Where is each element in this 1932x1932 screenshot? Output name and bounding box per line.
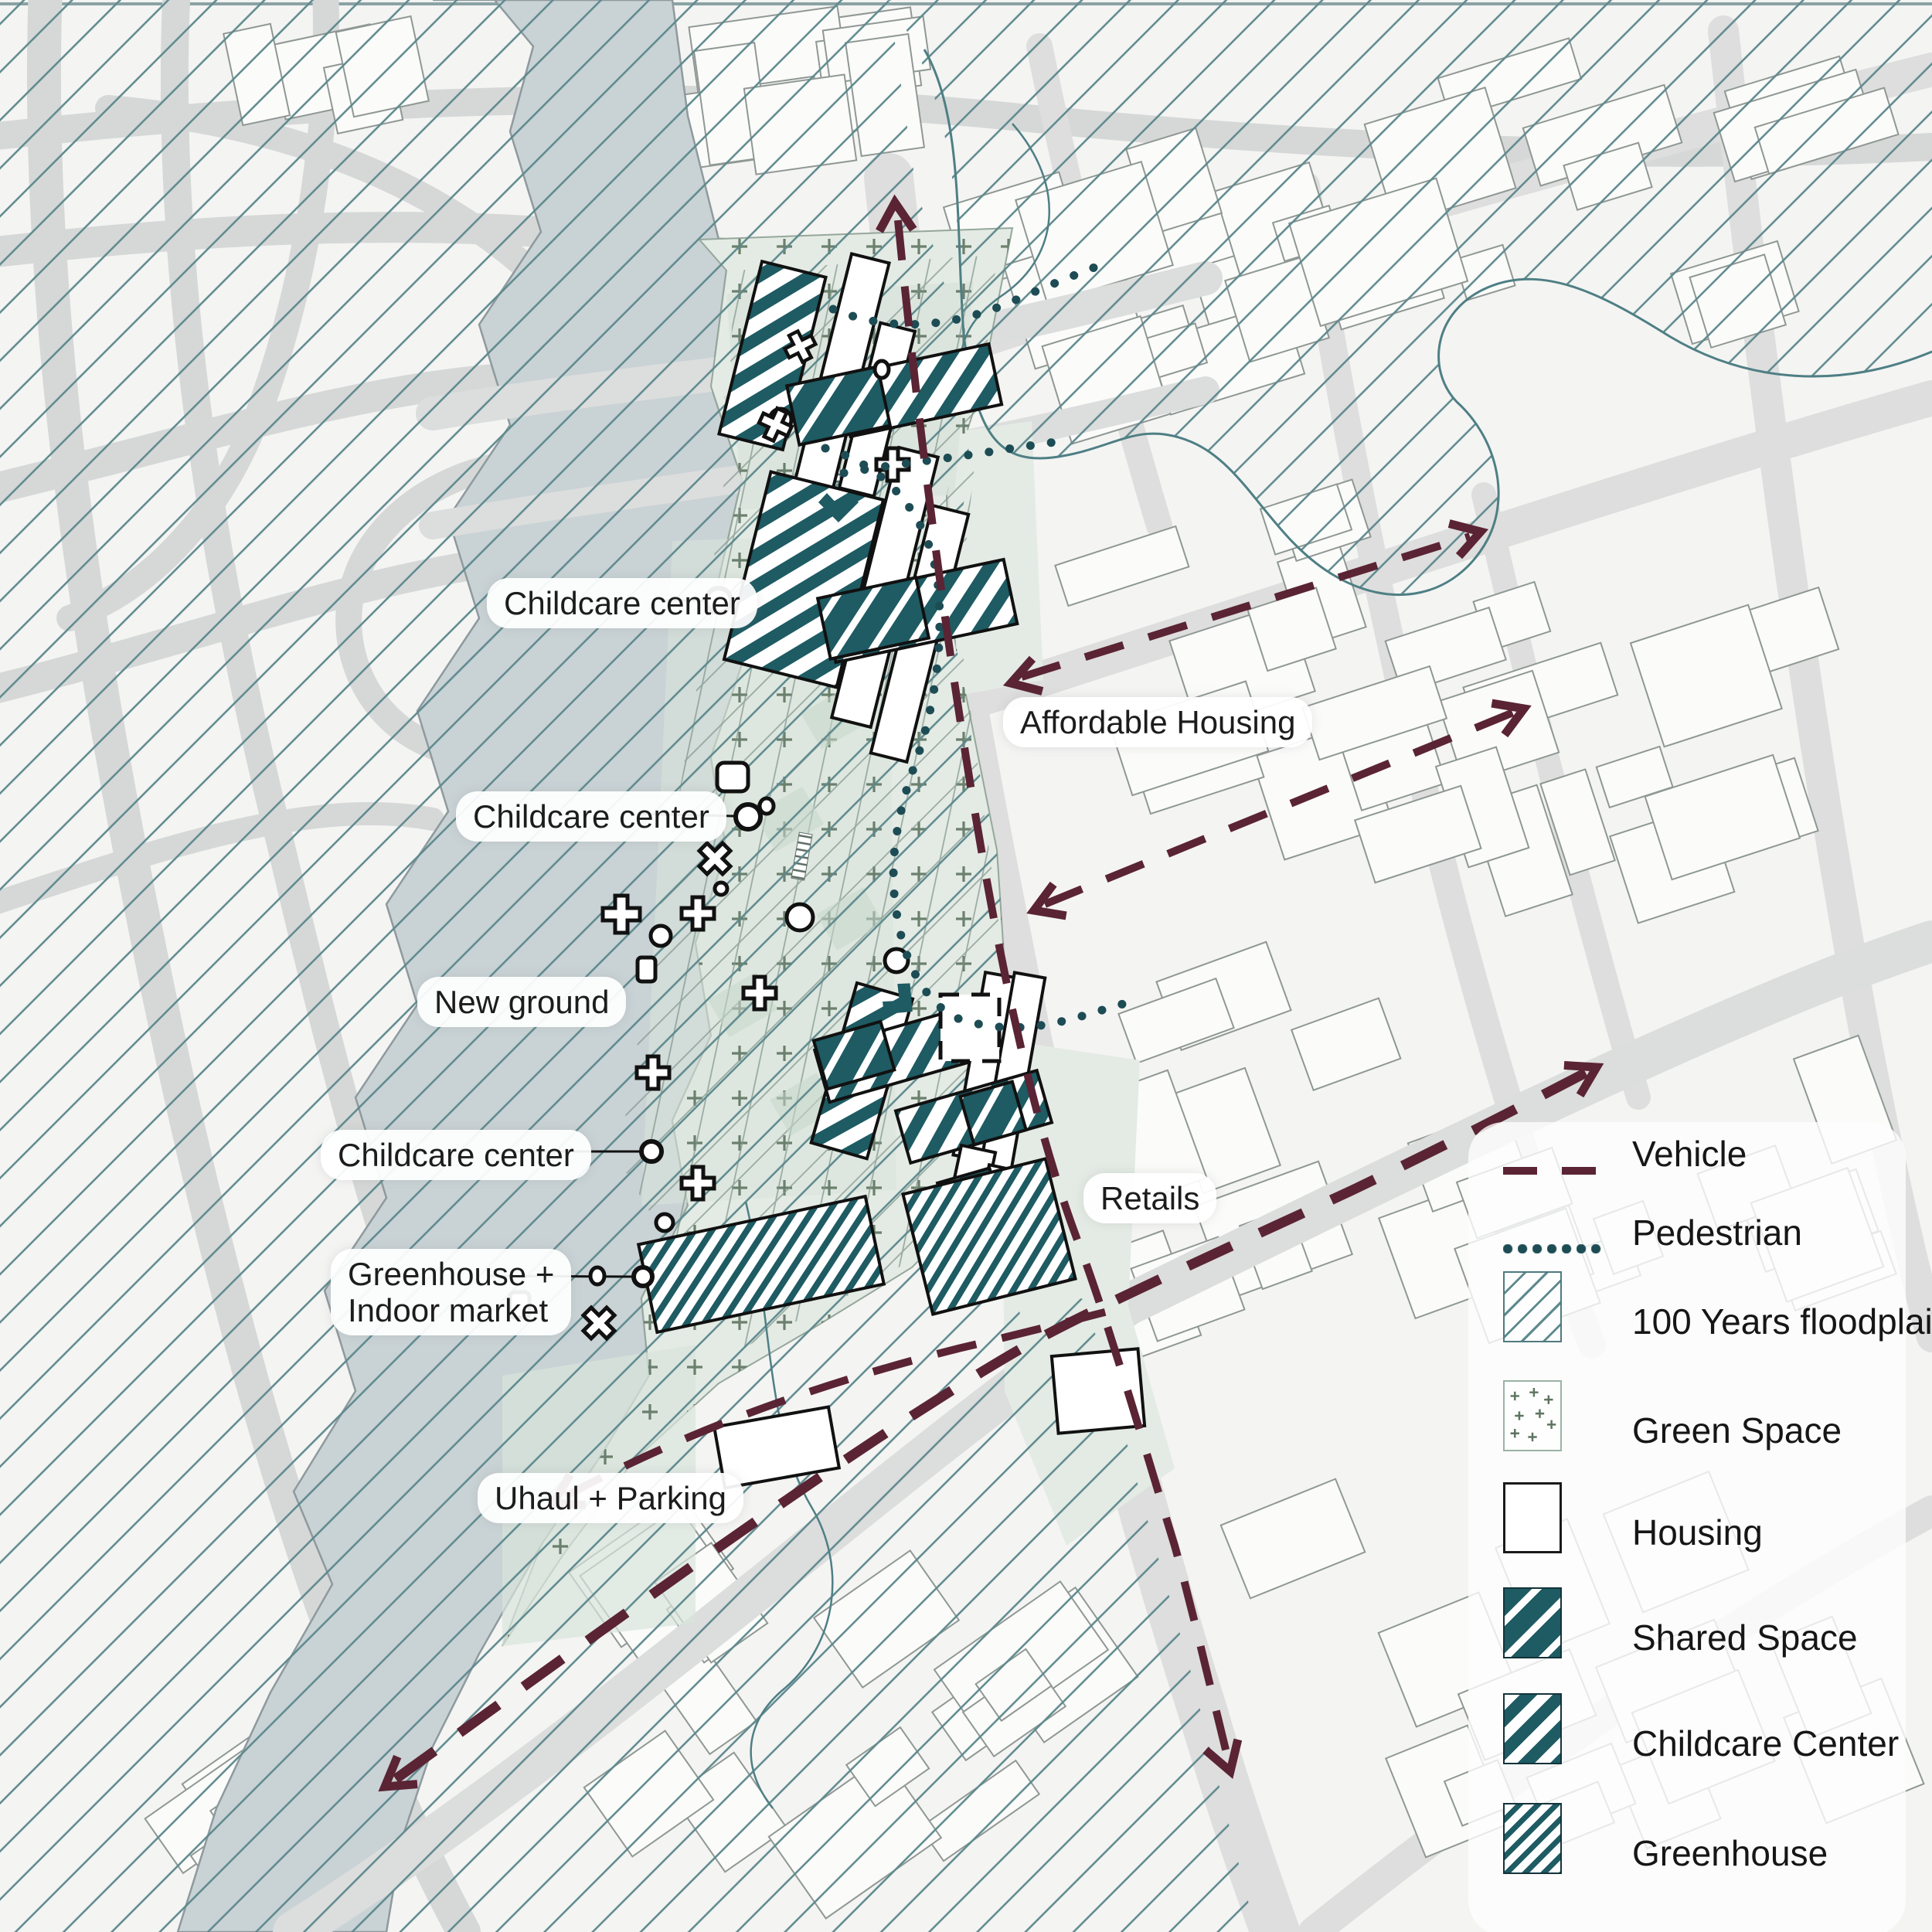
map-label-retails: Retails [1083,1173,1216,1223]
callout-circle [634,1267,652,1286]
circle-marker-icon [787,904,813,930]
greenhouse-swatch-icon [1503,1803,1562,1874]
vehicle-dash-icon [1503,1167,1605,1175]
greenhouse-label-line2: Indoor market [348,1292,548,1328]
dashed-outline-building [940,995,999,1061]
floodplain-swatch-icon [1503,1271,1562,1342]
rounded-square-marker-icon [717,763,748,791]
map-label-childcare-center-3: Childcare center [321,1130,591,1180]
circle-marker-icon [651,926,671,946]
callout-circle [736,804,760,829]
legend-label: Green Space [1632,1410,1842,1451]
legend-label: Vehicle [1632,1133,1747,1175]
housing-swatch-icon [1503,1482,1562,1553]
teardrop-marker-icon [875,361,889,378]
map-label-uhaul-parking: Uhaul + Parking [478,1473,743,1523]
pedestrian-dots-icon [1503,1244,1605,1253]
legend-label: Greenhouse [1632,1832,1828,1874]
legend-label: Housing [1632,1512,1763,1553]
callout-small-ellipse [590,1267,604,1284]
map-label-affordable-housing: Affordable Housing [1003,697,1312,747]
circle-marker-icon [715,883,727,895]
shared-space-swatch-icon [1503,1587,1562,1658]
map-label-childcare-center-2: Childcare center [456,791,726,842]
childcare-swatch-icon [1503,1693,1562,1764]
map-label-new-ground: New ground [417,977,626,1027]
legend-label: Pedestrian [1632,1212,1802,1253]
site-plan-map: Childcare center Childcare center Childc… [0,0,1932,1932]
greenhouse-label-line1: Greenhouse + [348,1256,554,1292]
legend-panel: Vehicle Pedestrian 100 Years floodplain [1468,1122,1906,1932]
legend-label: Childcare Center [1632,1723,1899,1764]
green-space-plus-pattern [1505,1382,1560,1450]
circle-marker-icon [656,1214,673,1231]
map-label-greenhouse-indoor-market: Greenhouse + Indoor market [331,1249,571,1335]
callout-circle [641,1141,662,1162]
green-space-swatch-icon [1503,1380,1562,1451]
rounded-square-marker-icon [638,957,655,981]
teardrop-marker-icon [760,798,774,814]
legend-label: Shared Space [1632,1617,1858,1658]
legend-label: 100 Years floodplain [1632,1301,1932,1342]
map-label-childcare-center-1: Childcare center [487,578,757,628]
